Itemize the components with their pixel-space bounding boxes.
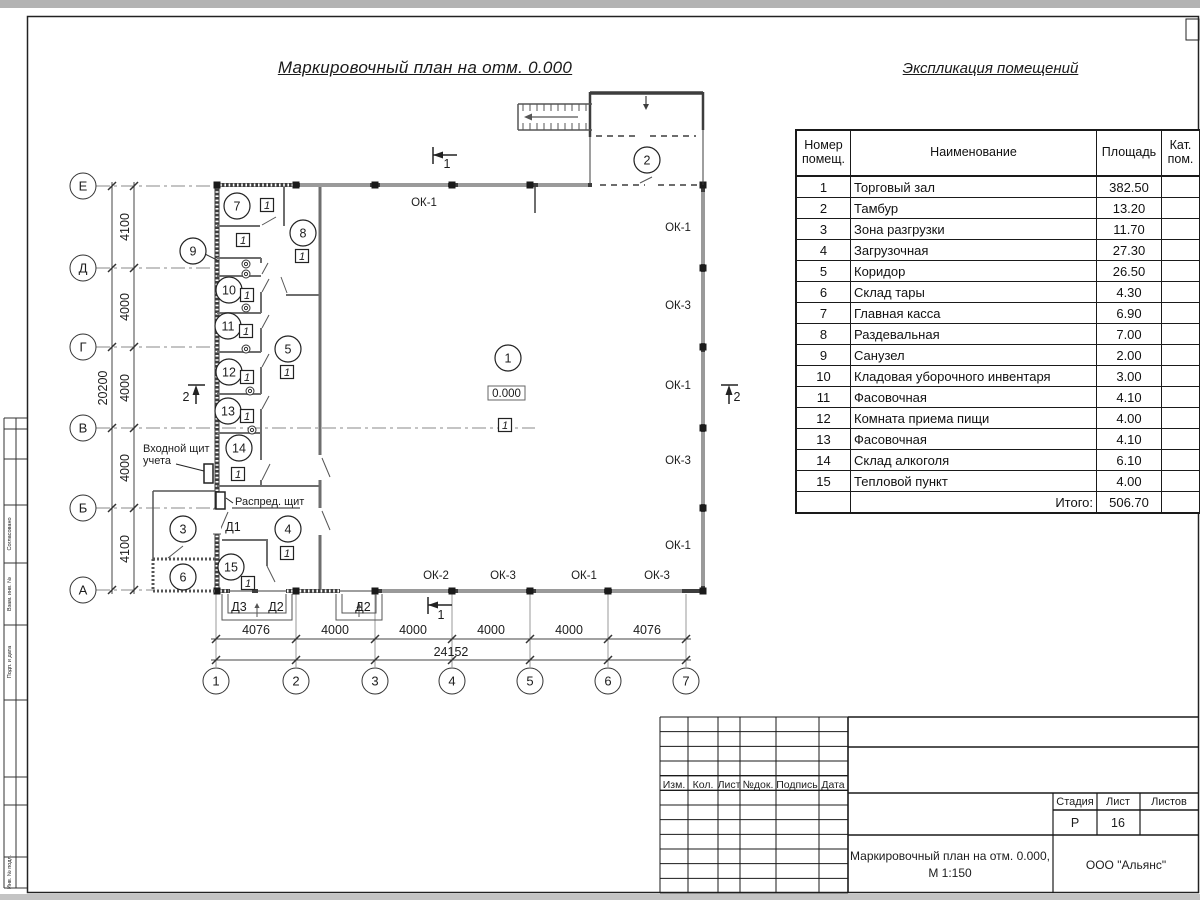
explication-cell: 1 — [796, 176, 851, 198]
room-number-text: 13 — [221, 405, 235, 419]
dim-bottom: 4000 — [321, 623, 349, 637]
sheets-label: Листов — [1151, 796, 1187, 808]
dim-bottom-total: 24152 — [434, 645, 469, 659]
fixture-inner — [244, 306, 247, 309]
explication-cell: 26.50 — [1097, 261, 1162, 282]
axis-number: 4 — [448, 674, 455, 689]
window-label-ок-1: ОК-1 — [665, 222, 691, 234]
room-number-text: 10 — [222, 284, 236, 298]
floor-type-mark: 1 — [232, 468, 245, 482]
axis-letter: В — [79, 421, 88, 436]
room-number-bubble-1: 1 — [495, 345, 521, 371]
explication-total-cell — [796, 492, 851, 514]
explication-cell: Раздевальная — [851, 324, 1097, 345]
dim-bottom: 4000 — [555, 623, 583, 637]
fixture-inner — [250, 428, 253, 431]
explication-cell — [1162, 471, 1200, 492]
explication-row: 1Торговый зал382.50 — [796, 176, 1200, 198]
axis-row-Б: Б — [70, 495, 96, 521]
floor-type-mark: 1 — [240, 325, 253, 339]
axis-col-3: 3 — [362, 668, 388, 694]
explication-total-cell: 506.70 — [1097, 492, 1162, 514]
pier — [700, 265, 707, 272]
axis-row-Е: Е — [70, 173, 96, 199]
explication-cell — [1162, 176, 1200, 198]
stage-label: Стадия — [1056, 796, 1094, 808]
floor-mark-text: 1 — [264, 200, 270, 212]
pier — [372, 182, 379, 189]
pier — [700, 505, 707, 512]
explication-cell: 10 — [796, 366, 851, 387]
fixture-inner — [244, 262, 247, 265]
plumbing-fixtures — [242, 260, 256, 434]
room-number-bubble-15: 15 — [218, 554, 244, 580]
floor-mark-text: 1 — [299, 251, 305, 263]
room-number-bubble-10: 10 — [216, 277, 242, 303]
explication-header: Номерпомещ. — [796, 130, 851, 176]
explication-cell: Склад тары — [851, 282, 1097, 303]
dim-bottom: 4000 — [399, 623, 427, 637]
explication-cell: 9 — [796, 345, 851, 366]
explication-cell — [1162, 345, 1200, 366]
stage-value: Р — [1071, 816, 1079, 830]
explication-cell — [1162, 261, 1200, 282]
axis-number: 6 — [604, 674, 611, 689]
explication-row: 2Тамбур13.20 — [796, 198, 1200, 219]
explication-cell: Коридор — [851, 261, 1097, 282]
explication-row: 14Склад алкоголя6.10 — [796, 450, 1200, 471]
dim-bottom: 4076 — [633, 623, 661, 637]
fixture-inner — [244, 347, 247, 350]
axis-col-4: 4 — [439, 668, 465, 694]
explication-cell: Фасовочная — [851, 387, 1097, 408]
explication-total-cell — [1162, 492, 1200, 514]
window-label-ок-1: ОК-1 — [411, 197, 437, 209]
explication-cell: Санузел — [851, 345, 1097, 366]
axis-col-1: 1 — [203, 668, 229, 694]
door-label-д2: Д2 — [268, 600, 283, 614]
floor-mark-text: 1 — [244, 411, 250, 423]
room-number-bubble-9: 9 — [180, 238, 206, 264]
explication-cell: 4.30 — [1097, 282, 1162, 303]
floor-mark-text: 1 — [243, 326, 249, 338]
explication-cell — [1162, 429, 1200, 450]
room-number-text: 12 — [222, 366, 236, 380]
room-number-bubble-14: 14 — [226, 435, 252, 461]
window-label-ок-1: ОК-1 — [665, 380, 691, 392]
explication-cell: 13.20 — [1097, 198, 1162, 219]
dim-left-total: 20200 — [96, 371, 110, 406]
sheet-label: Лист — [1106, 796, 1130, 808]
floor-mark-text: 1 — [244, 290, 250, 302]
axis-col-6: 6 — [595, 668, 621, 694]
explication-cell: 5 — [796, 261, 851, 282]
door-label-д1: Д1 — [225, 520, 240, 534]
explication-header: Кат.пом. — [1162, 130, 1200, 176]
explication-cell: 14 — [796, 450, 851, 471]
explication-cell: 3.00 — [1097, 366, 1162, 387]
explication-row: 7Главная касса6.90 — [796, 303, 1200, 324]
explication-row: 5Коридор26.50 — [796, 261, 1200, 282]
explication-cell: 12 — [796, 408, 851, 429]
explication-title: Экспликация помещений — [868, 60, 1113, 77]
explication-row: 11Фасовочная4.10 — [796, 387, 1200, 408]
explication-cell: Загрузочная — [851, 240, 1097, 261]
room-number-bubble-13: 13 — [215, 398, 241, 424]
explication-cell: 13 — [796, 429, 851, 450]
floor-type-mark: 1 — [241, 371, 254, 385]
room-number-bubble-2: 2 — [634, 147, 660, 173]
room-number-text: 8 — [300, 227, 307, 241]
section-mark-label: 2 — [183, 390, 190, 404]
entry-panel-label: Входной щит — [143, 443, 210, 455]
explication-row: 6Склад тары4.30 — [796, 282, 1200, 303]
room-number-text: 15 — [224, 561, 238, 575]
room-number-bubble-11: 11 — [215, 313, 241, 339]
explication-table-wrap: Номерпомещ.НаименованиеПлощадьКат.пом.1Т… — [795, 129, 1200, 514]
explication-cell — [1162, 198, 1200, 219]
room-number-text: 6 — [180, 571, 187, 585]
explication-cell: 6.10 — [1097, 450, 1162, 471]
window-label-ок-1: ОК-1 — [665, 540, 691, 552]
dim-bottom: 4076 — [242, 623, 270, 637]
distribution-panel-label: Распред. щит — [235, 496, 304, 508]
explication-cell: Главная касса — [851, 303, 1097, 324]
doc-name-line1: Маркировочный план на отм. 0.000, — [850, 849, 1050, 863]
axis-letter: А — [79, 583, 88, 598]
drawing-sheet: 123456789101112131415111111111111ОК-1ОК-… — [0, 0, 1200, 900]
room-number-text: 4 — [285, 523, 292, 537]
explication-cell: 2.00 — [1097, 345, 1162, 366]
explication-cell — [1162, 219, 1200, 240]
explication-row: 13Фасовочная4.10 — [796, 429, 1200, 450]
window-label-ок-3: ОК-3 — [665, 300, 691, 312]
explication-header: Наименование — [851, 130, 1097, 176]
dim-left: 4000 — [118, 293, 132, 321]
axis-row-Д: Д — [70, 255, 96, 281]
explication-table: Номерпомещ.НаименованиеПлощадьКат.пом.1Т… — [795, 129, 1200, 514]
room-number-bubble-12: 12 — [216, 359, 242, 385]
pier — [372, 588, 379, 595]
axis-number: 5 — [526, 674, 533, 689]
explication-cell: Торговый зал — [851, 176, 1097, 198]
frame-side-label: Подп. и дата — [7, 645, 13, 678]
floor-type-mark: 1 — [499, 419, 512, 433]
axis-row-А: А — [70, 577, 96, 603]
pier — [527, 588, 534, 595]
pier — [449, 588, 456, 595]
axis-row-В: В — [70, 415, 96, 441]
explication-cell — [1162, 240, 1200, 261]
explication-cell: 11.70 — [1097, 219, 1162, 240]
floor-type-mark: 1 — [281, 547, 294, 561]
frame-side-label: Инв. № подл. — [7, 854, 13, 889]
room-number-text: 1 — [505, 352, 512, 366]
dim-left: 4000 — [118, 454, 132, 482]
explication-cell: 6.90 — [1097, 303, 1162, 324]
ramp — [518, 104, 592, 130]
entry-panel-label: учета — [143, 455, 172, 467]
room-number-bubble-5: 5 — [275, 336, 301, 362]
explication-cell: 4.00 — [1097, 408, 1162, 429]
explication-cell: Склад алкоголя — [851, 450, 1097, 471]
explication-cell: Тепловой пункт — [851, 471, 1097, 492]
room-number-text: 11 — [222, 320, 235, 334]
dim-left: 4100 — [118, 213, 132, 241]
room-number-bubble-3: 3 — [170, 516, 196, 542]
dim-left: 4100 — [118, 535, 132, 563]
room-number-text: 5 — [285, 343, 292, 357]
titleblock-col-3: Лист — [718, 779, 741, 791]
room-number-text: 2 — [644, 154, 651, 168]
explication-header: Площадь — [1097, 130, 1162, 176]
axis-number: 7 — [682, 674, 689, 689]
frame-side-label: Согласовано — [7, 517, 13, 550]
floor-mark-text: 1 — [502, 420, 508, 432]
pier — [700, 425, 707, 432]
explication-row: 15Тепловой пункт4.00 — [796, 471, 1200, 492]
elevation-text: 0.000 — [492, 388, 521, 400]
axis-number: 2 — [292, 674, 299, 689]
room-number-text: 3 — [180, 523, 187, 537]
explication-row: 3Зона разгрузки11.70 — [796, 219, 1200, 240]
company-name: ООО "Альянс" — [1086, 858, 1166, 872]
axis-letter: Б — [79, 501, 88, 516]
explication-cell: 382.50 — [1097, 176, 1162, 198]
explication-cell: 8 — [796, 324, 851, 345]
section-mark-label: 1 — [438, 608, 445, 622]
axis-lines — [96, 186, 535, 590]
explication-cell: 3 — [796, 219, 851, 240]
plan-title: Маркировочный план на отм. 0.000 — [255, 58, 595, 78]
axis-number: 1 — [212, 674, 219, 689]
explication-cell: Комната приема пищи — [851, 408, 1097, 429]
window-label-ок-2: ОК-2 — [423, 570, 449, 582]
room-number-text: 7 — [234, 200, 241, 214]
floor-type-mark: 1 — [241, 410, 254, 424]
room-number-bubble-8: 8 — [290, 220, 316, 246]
section-marks — [188, 147, 738, 614]
explication-row: 8Раздевальная7.00 — [796, 324, 1200, 345]
explication-cell: 7.00 — [1097, 324, 1162, 345]
window-label-ок-3: ОК-3 — [490, 570, 516, 582]
explication-cell: Кладовая уборочного инвентаря — [851, 366, 1097, 387]
axis-row-Г: Г — [70, 334, 96, 360]
fixture-inner — [244, 272, 247, 275]
explication-row: 12Комната приема пищи4.00 — [796, 408, 1200, 429]
explication-cell — [1162, 366, 1200, 387]
explication-cell — [1162, 303, 1200, 324]
explication-cell — [1162, 450, 1200, 471]
frame-side-label: Взам. инв. № — [7, 577, 13, 611]
door-label-д2: Д2 — [355, 600, 370, 614]
floor-mark-text: 1 — [244, 372, 250, 384]
explication-cell: 4.00 — [1097, 471, 1162, 492]
titleblock-col-6: Дата — [821, 779, 844, 791]
door-d1-opening — [213, 509, 221, 534]
window-label-ок-3: ОК-3 — [644, 570, 670, 582]
pier — [214, 182, 221, 189]
room-number-text: 9 — [190, 245, 197, 259]
axis-letter: Г — [79, 340, 86, 355]
axis-col-2: 2 — [283, 668, 309, 694]
room-number-bubble-4: 4 — [275, 516, 301, 542]
explication-cell: 7 — [796, 303, 851, 324]
explication-cell: 15 — [796, 471, 851, 492]
doc-name-line2: М 1:150 — [928, 866, 972, 880]
explication-row: 4Загрузочная27.30 — [796, 240, 1200, 261]
floor-type-mark: 1 — [261, 199, 274, 213]
floor-type-mark: 1 — [281, 366, 294, 380]
floor-type-mark: 1 — [296, 250, 309, 264]
room-number-text: 14 — [232, 442, 246, 456]
pier — [700, 588, 707, 595]
explication-cell: 6 — [796, 282, 851, 303]
pier — [293, 182, 300, 189]
explication-cell — [1162, 324, 1200, 345]
window-label-ок-1: ОК-1 — [571, 570, 597, 582]
axis-letter: Е — [79, 179, 88, 194]
floor-type-mark: 1 — [242, 577, 255, 591]
explication-cell: 4 — [796, 240, 851, 261]
pier — [293, 588, 300, 595]
titleblock-col-4: №док. — [743, 779, 774, 791]
section-mark-label: 1 — [444, 157, 451, 171]
room-number-bubble-6: 6 — [170, 564, 196, 590]
titleblock-col-2: Кол. — [693, 779, 714, 791]
floor-type-mark: 1 — [241, 289, 254, 303]
explication-cell: Фасовочная — [851, 429, 1097, 450]
door-label-д3: Д3 — [231, 600, 246, 614]
titleblock-col-1: Изм. — [663, 779, 686, 791]
explication-row: 10Кладовая уборочного инвентаря3.00 — [796, 366, 1200, 387]
room-number-bubble-7: 7 — [224, 193, 250, 219]
explication-cell — [1162, 408, 1200, 429]
explication-cell — [1162, 282, 1200, 303]
floor-mark-text: 1 — [245, 578, 251, 590]
axis-col-7: 7 — [673, 668, 699, 694]
interior-walls — [217, 187, 535, 589]
explication-cell: 4.10 — [1097, 387, 1162, 408]
dim-bottom: 4000 — [477, 623, 505, 637]
axis-number: 3 — [371, 674, 378, 689]
pier — [527, 182, 534, 189]
explication-cell: Зона разгрузки — [851, 219, 1097, 240]
floor-mark-text: 1 — [240, 235, 246, 247]
floor-mark-text: 1 — [284, 367, 290, 379]
window-label-ок-3: ОК-3 — [665, 455, 691, 467]
sheet-value: 16 — [1111, 816, 1125, 830]
axis-col-5: 5 — [517, 668, 543, 694]
section-mark-label: 2 — [734, 390, 741, 404]
floor-mark-text: 1 — [284, 548, 290, 560]
axis-letter: Д — [79, 261, 88, 276]
explication-row: 9Санузел2.00 — [796, 345, 1200, 366]
explication-total-cell: Итого: — [851, 492, 1097, 514]
explication-cell: 11 — [796, 387, 851, 408]
explication-cell: 4.10 — [1097, 429, 1162, 450]
dim-left: 4000 — [118, 374, 132, 402]
floor-type-mark: 1 — [237, 234, 250, 248]
pier — [449, 182, 456, 189]
explication-cell — [1162, 387, 1200, 408]
explication-total-row: Итого:506.70 — [796, 492, 1200, 514]
floor-mark-text: 1 — [235, 469, 241, 481]
pier — [700, 344, 707, 351]
fixture-inner — [248, 389, 251, 392]
explication-cell: 2 — [796, 198, 851, 219]
titleblock-col-5: Подпись — [776, 779, 818, 791]
pier — [605, 588, 612, 595]
explication-cell: 27.30 — [1097, 240, 1162, 261]
explication-cell: Тамбур — [851, 198, 1097, 219]
